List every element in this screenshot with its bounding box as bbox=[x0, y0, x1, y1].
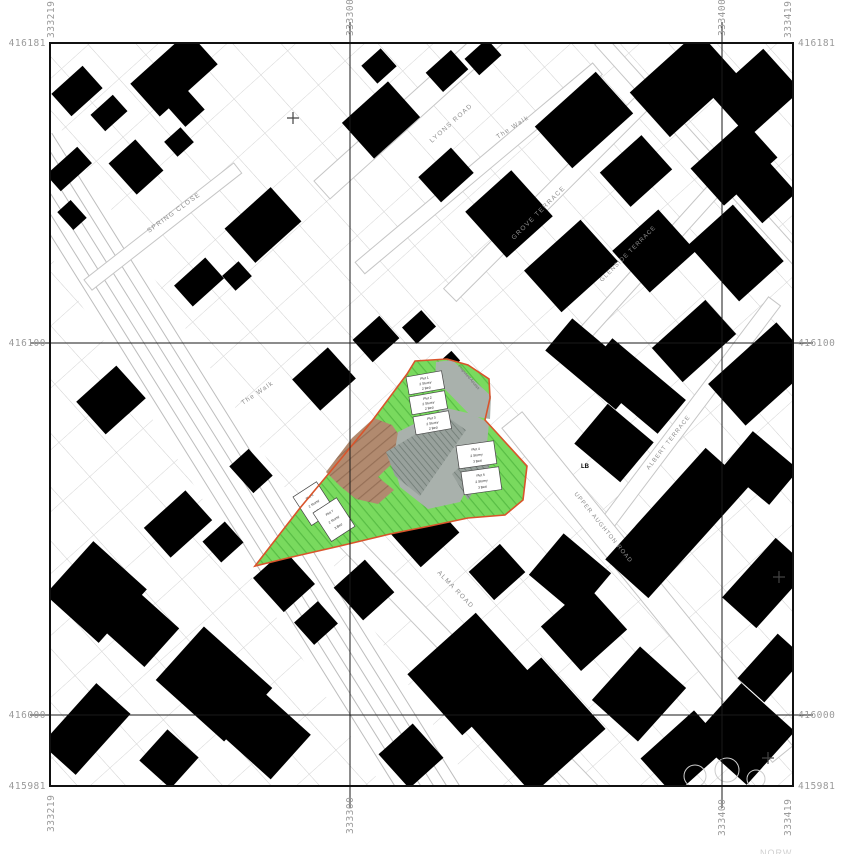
letter-box-label: LB bbox=[581, 464, 590, 470]
grid-label-northing-right-3: 416000 bbox=[798, 710, 835, 721]
grid-label-easting-bottom-3: 333400 bbox=[717, 799, 728, 836]
site-plan-map: Plot 1 2 Storey 2 Bed Plot 2 2 Storey 2 … bbox=[0, 0, 850, 854]
grid-label-easting-top-3: 333400 bbox=[717, 0, 728, 36]
grid-label-northing-left-1: 416181 bbox=[9, 38, 46, 49]
grid-label-northing-right-1: 416181 bbox=[798, 38, 835, 49]
grid-label-northing-right-4: 415981 bbox=[798, 781, 835, 792]
plot-label-5: Plot 5 2 Storey 3 Bed bbox=[461, 467, 502, 495]
grid-label-easting-bottom-2: 333300 bbox=[345, 797, 356, 834]
grid-label-northing-right-2: 416100 bbox=[798, 338, 835, 349]
grid-label-northing-left-4: 415981 bbox=[9, 781, 46, 792]
grid-label-easting-top-4: 333419 bbox=[783, 1, 794, 38]
grid-label-easting-bottom-1: 333219 bbox=[46, 795, 57, 832]
faint-corner-text: NORW bbox=[760, 848, 792, 854]
grid-label-easting-top-1: 333219 bbox=[46, 1, 57, 38]
plot-label-4: Plot 4 2 Storey 3 Bed bbox=[456, 441, 497, 469]
grid-label-northing-left-2: 416100 bbox=[9, 338, 46, 349]
grid-label-easting-bottom-4: 333419 bbox=[783, 799, 794, 836]
map-svg: Plot 1 2 Storey 2 Bed Plot 2 2 Storey 2 … bbox=[0, 0, 850, 854]
grid-label-easting-top-2: 333300 bbox=[345, 0, 356, 36]
grid-label-northing-left-3: 416000 bbox=[9, 710, 46, 721]
